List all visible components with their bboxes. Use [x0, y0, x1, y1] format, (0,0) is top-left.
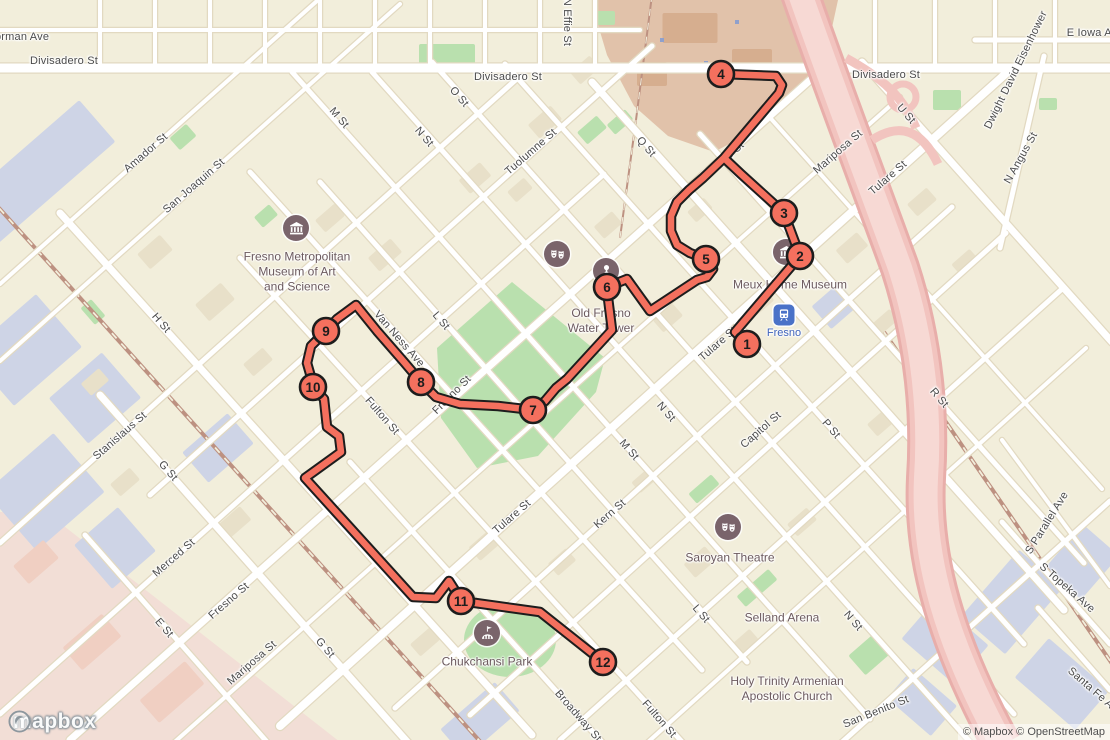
route-marker-number: 4 — [717, 67, 725, 82]
route-marker-number: 10 — [305, 380, 320, 395]
route-marker-10[interactable]: 10 — [300, 374, 326, 400]
route-marker-number: 1 — [743, 337, 751, 352]
attribution-osm-link[interactable]: © OpenStreetMap — [1016, 726, 1105, 738]
route-marker-7[interactable]: 7 — [520, 397, 546, 423]
route-marker-4[interactable]: 4 — [708, 61, 734, 87]
route-marker-number: 2 — [796, 249, 804, 264]
route-marker-12[interactable]: 12 — [590, 649, 616, 675]
route-marker-6[interactable]: 6 — [594, 274, 620, 300]
attribution-mapbox-link[interactable]: © Mapbox — [963, 726, 1013, 738]
route-marker-9[interactable]: 9 — [313, 318, 339, 344]
route-marker-11[interactable]: 11 — [448, 588, 474, 614]
map-canvas[interactable]: Norman AveDivisadero StDivisadero StDivi… — [0, 0, 1110, 740]
route-marker-5[interactable]: 5 — [693, 246, 719, 272]
route-marker-3[interactable]: 3 — [771, 200, 797, 226]
route-marker-number: 5 — [702, 252, 710, 267]
mapbox-logo[interactable]: mapbox — [8, 710, 97, 734]
route-marker-number: 7 — [529, 403, 537, 418]
route-marker-number: 8 — [417, 375, 425, 390]
route-layer: 123456789101112 — [0, 0, 1110, 740]
route-marker-number: 12 — [595, 655, 610, 670]
route-marker-number: 3 — [780, 206, 788, 221]
route-marker-1[interactable]: 1 — [734, 331, 760, 357]
route-marker-2[interactable]: 2 — [787, 243, 813, 269]
route-marker-number: 6 — [603, 280, 611, 295]
attribution-bar: © Mapbox © OpenStreetMap — [958, 724, 1110, 740]
route-marker-8[interactable]: 8 — [408, 369, 434, 395]
route-path[interactable] — [305, 74, 800, 662]
route-marker-number: 9 — [322, 324, 330, 339]
route-marker-number: 11 — [454, 594, 469, 609]
